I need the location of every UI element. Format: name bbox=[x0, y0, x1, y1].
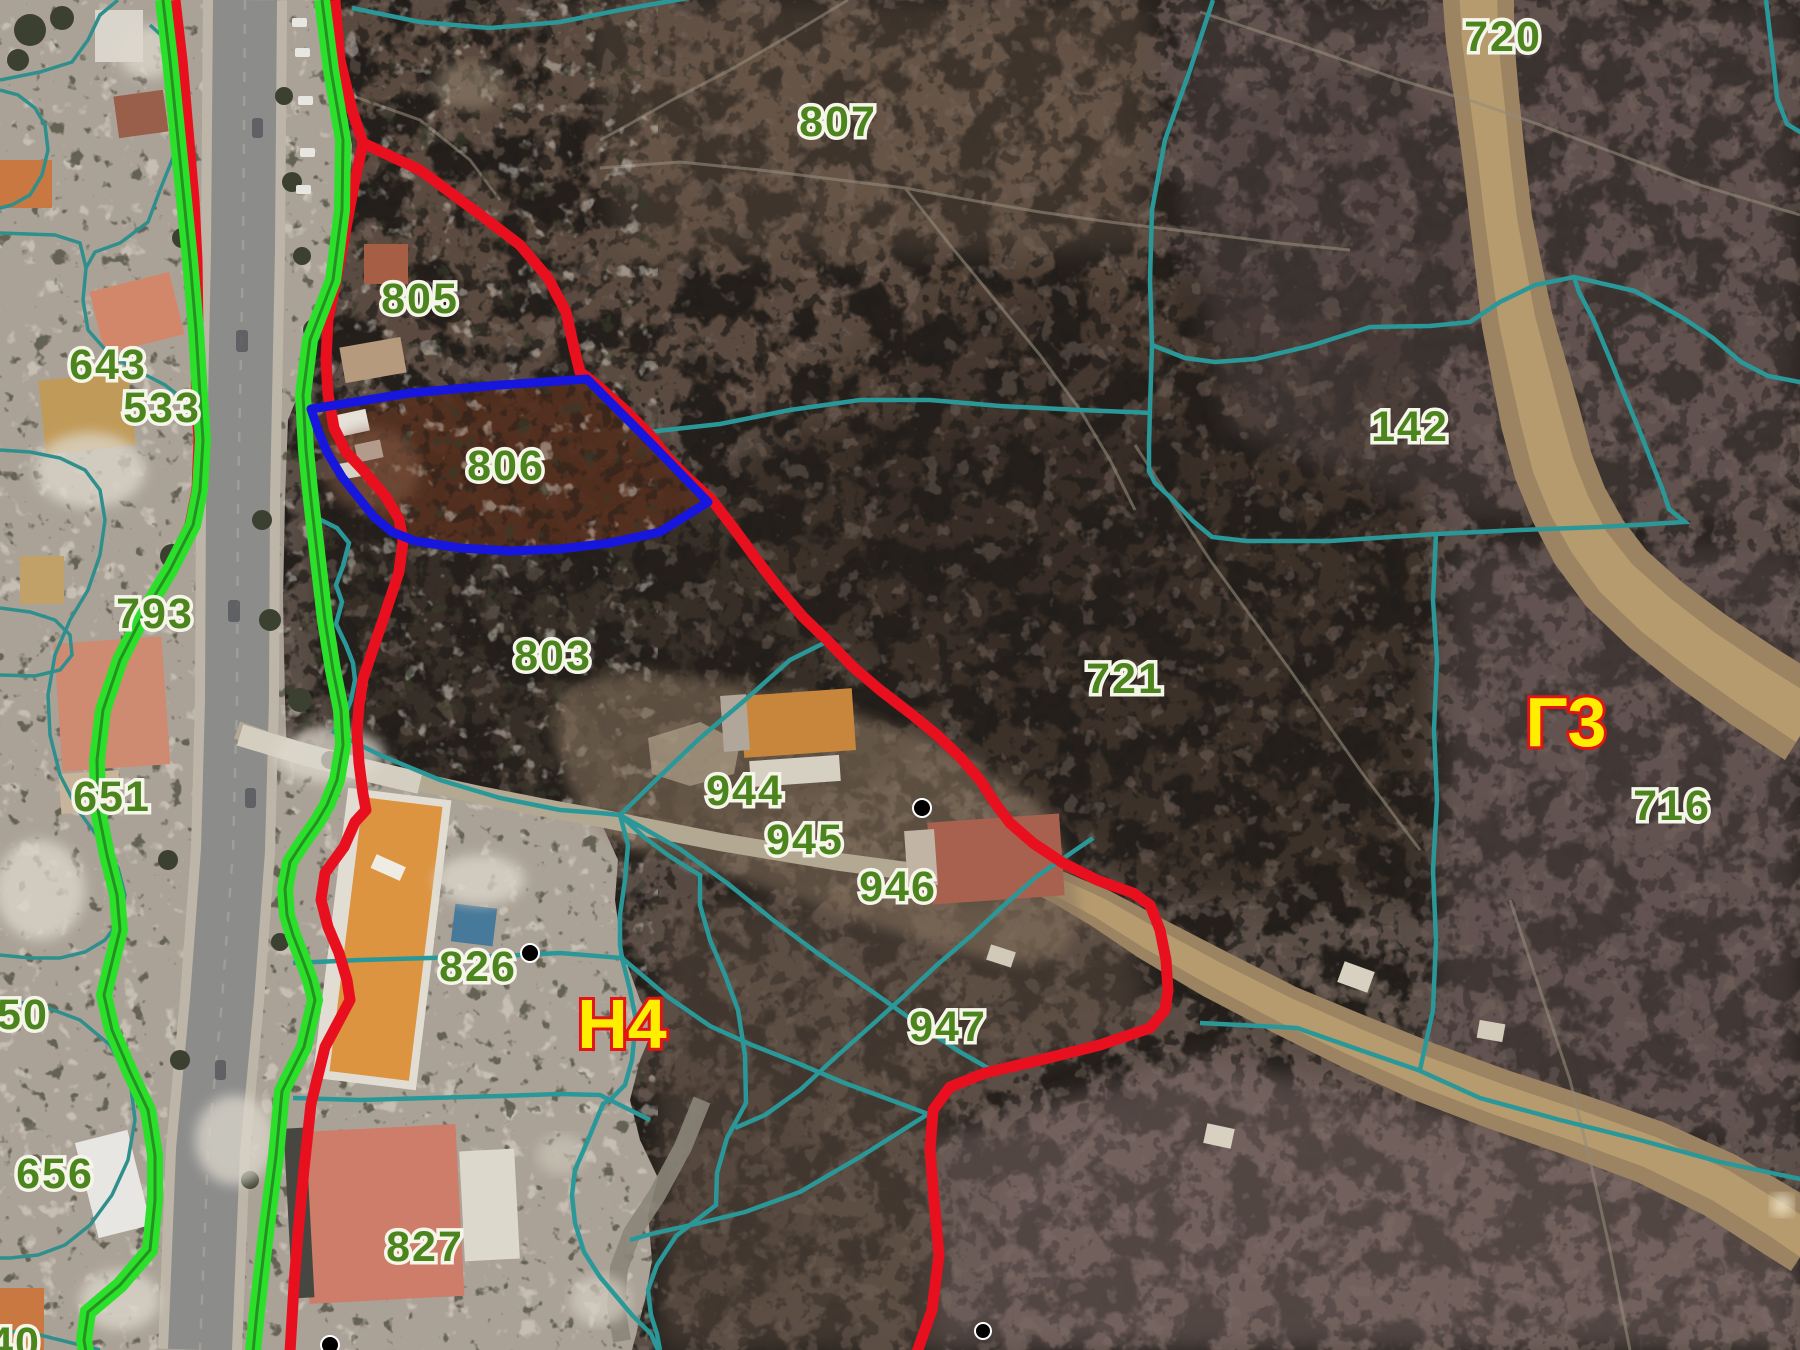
svg-text:H4: H4 bbox=[577, 985, 667, 1063]
svg-text:803: 803 bbox=[514, 632, 592, 680]
svg-text:720: 720 bbox=[1464, 13, 1542, 61]
svg-text:826: 826 bbox=[439, 943, 517, 991]
svg-text:40: 40 bbox=[0, 1319, 41, 1350]
svg-text:806: 806 bbox=[467, 442, 545, 490]
svg-text:793: 793 bbox=[116, 590, 194, 638]
svg-text:533: 533 bbox=[123, 384, 201, 432]
svg-text:945: 945 bbox=[766, 816, 844, 864]
svg-text:Γ3: Γ3 bbox=[1525, 683, 1606, 761]
svg-text:142: 142 bbox=[1371, 403, 1449, 451]
svg-text:807: 807 bbox=[799, 98, 877, 146]
svg-text:946: 946 bbox=[859, 863, 937, 911]
svg-text:643: 643 bbox=[69, 341, 147, 389]
svg-text:827: 827 bbox=[386, 1223, 464, 1271]
svg-text:721: 721 bbox=[1086, 655, 1164, 703]
svg-text:944: 944 bbox=[706, 767, 784, 815]
svg-text:656: 656 bbox=[16, 1150, 94, 1198]
svg-text:805: 805 bbox=[381, 275, 459, 323]
svg-text:651: 651 bbox=[73, 773, 151, 821]
svg-text:716: 716 bbox=[1633, 782, 1711, 830]
svg-text:947: 947 bbox=[909, 1003, 987, 1051]
svg-text:650: 650 bbox=[0, 991, 49, 1039]
